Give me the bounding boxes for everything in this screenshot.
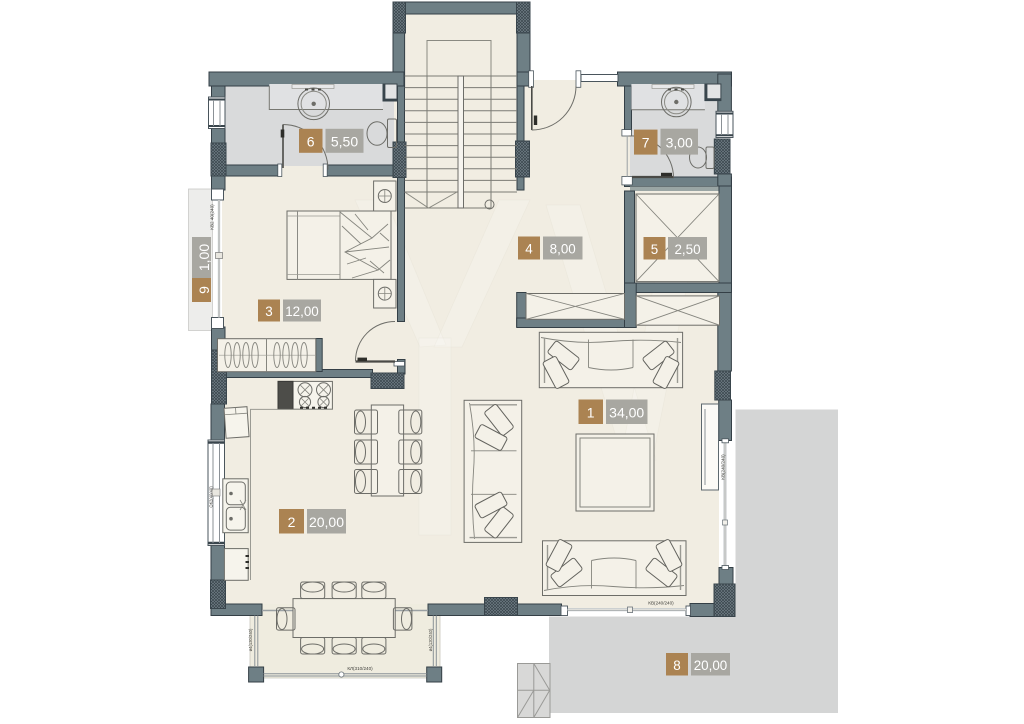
svg-text:1: 1 xyxy=(587,405,595,421)
svg-text:КЛ(310/240): КЛ(310/240) xyxy=(347,666,373,671)
svg-text:КВ(240/240): КВ(240/240) xyxy=(648,601,674,606)
svg-text:ОК2(40/40): ОК2(40/40) xyxy=(209,486,214,508)
svg-text:20,00: 20,00 xyxy=(694,658,728,673)
svg-text:7: 7 xyxy=(642,135,650,151)
svg-text:КВ(240/240): КВ(240/240) xyxy=(721,454,726,480)
svg-text:20,00: 20,00 xyxy=(309,514,344,530)
svg-text:6: 6 xyxy=(307,133,315,149)
svg-text:3: 3 xyxy=(265,304,272,319)
svg-text:5,50: 5,50 xyxy=(331,133,358,149)
svg-text:4: 4 xyxy=(525,242,533,257)
svg-text:12,00: 12,00 xyxy=(285,304,319,319)
svg-text:2: 2 xyxy=(288,514,296,530)
svg-text:9: 9 xyxy=(196,286,212,294)
svg-text:3,00: 3,00 xyxy=(666,135,693,151)
svg-text:ø4(120/240): ø4(120/240) xyxy=(428,628,433,651)
svg-text:5: 5 xyxy=(651,242,658,257)
svg-text:8: 8 xyxy=(673,658,680,673)
svg-text:КВ2 40(240): КВ2 40(240) xyxy=(210,204,215,230)
svg-text:ø4(120/240): ø4(120/240) xyxy=(248,628,253,651)
svg-text:2,50: 2,50 xyxy=(674,242,700,257)
svg-text:34,00: 34,00 xyxy=(609,405,644,421)
svg-text:1,00: 1,00 xyxy=(196,244,212,271)
svg-text:8,00: 8,00 xyxy=(550,242,576,257)
